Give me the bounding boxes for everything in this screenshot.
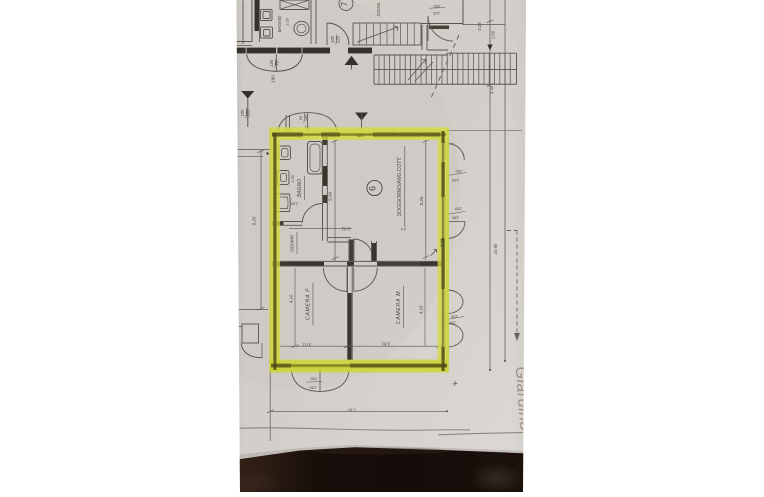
svg-text:150: 150 (448, 321, 455, 326)
svg-text:7.47: 7.47 (347, 406, 357, 412)
svg-text:9.26: 9.26 (252, 216, 257, 225)
svg-text:3.98: 3.98 (440, 238, 445, 247)
svg-text:4.10: 4.10 (289, 294, 294, 303)
svg-text:3.81: 3.81 (381, 342, 390, 347)
svg-text:2.4: 2.4 (401, 227, 407, 231)
svg-text:180: 180 (271, 75, 276, 83)
svg-text:150: 150 (309, 386, 316, 391)
svg-text:100: 100 (330, 35, 335, 43)
svg-text:BAGNO: BAGNO (297, 179, 303, 197)
svg-text:3.34: 3.34 (489, 85, 494, 94)
svg-text:CAMERA F: CAMERA F (306, 288, 312, 320)
svg-text:5.26: 5.26 (419, 196, 424, 205)
svg-text:5.06: 5.06 (328, 192, 333, 201)
svg-text:SOGG.: SOGG. (376, 1, 381, 16)
svg-text:100: 100 (240, 109, 245, 117)
svg-text:2.05: 2.05 (291, 202, 299, 206)
svg-text:3.01: 3.01 (302, 343, 311, 348)
svg-text:125: 125 (432, 11, 439, 16)
svg-text:BAGNO: BAGNO (277, 15, 282, 32)
svg-text:125: 125 (451, 178, 458, 183)
svg-text:4.10: 4.10 (419, 305, 424, 314)
svg-text:SOGGIORNO/ANG.COTT.: SOGGIORNO/ANG.COTT. (397, 157, 403, 217)
svg-text:126: 126 (269, 59, 274, 67)
svg-text:0.25: 0.25 (477, 22, 482, 31)
svg-text:250: 250 (454, 207, 462, 212)
svg-text:150: 150 (310, 377, 317, 382)
svg-text:2.25: 2.25 (286, 17, 290, 26)
svg-text:120: 120 (356, 134, 363, 139)
svg-text:6: 6 (368, 186, 378, 191)
svg-text:CAMERA M.: CAMERA M. (396, 289, 402, 325)
svg-text:2.01: 2.01 (341, 227, 351, 232)
svg-text:DISIMP.: DISIMP. (290, 234, 296, 251)
svg-text:245: 245 (305, 115, 309, 122)
svg-text:185: 185 (451, 216, 458, 221)
svg-text:1.50: 1.50 (290, 174, 295, 182)
svg-text:7: 7 (340, 1, 349, 6)
svg-text:90: 90 (299, 116, 303, 120)
svg-text:1.00: 1.00 (491, 30, 496, 39)
svg-text:10.60: 10.60 (493, 243, 498, 254)
